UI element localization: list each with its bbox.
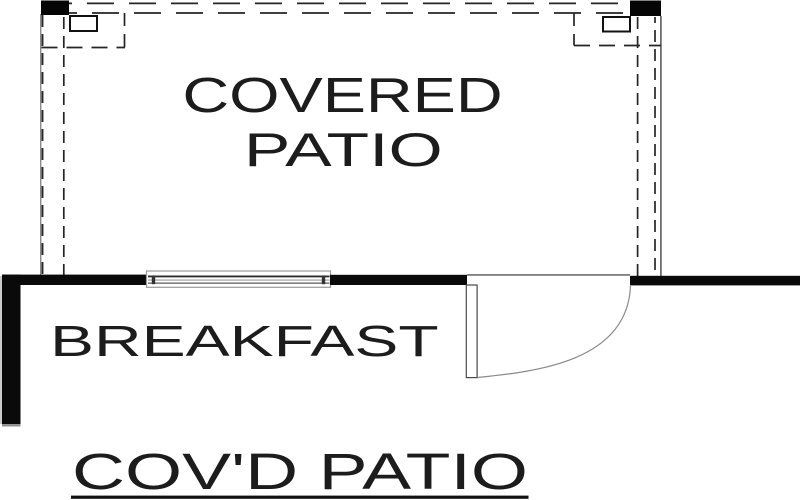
- svg-text:COVERED: COVERED: [182, 69, 502, 123]
- svg-text:COV'D PATIO: COV'D PATIO: [72, 444, 528, 500]
- svg-text:PATIO: PATIO: [244, 123, 443, 176]
- svg-text:BREAKFAST: BREAKFAST: [50, 316, 439, 365]
